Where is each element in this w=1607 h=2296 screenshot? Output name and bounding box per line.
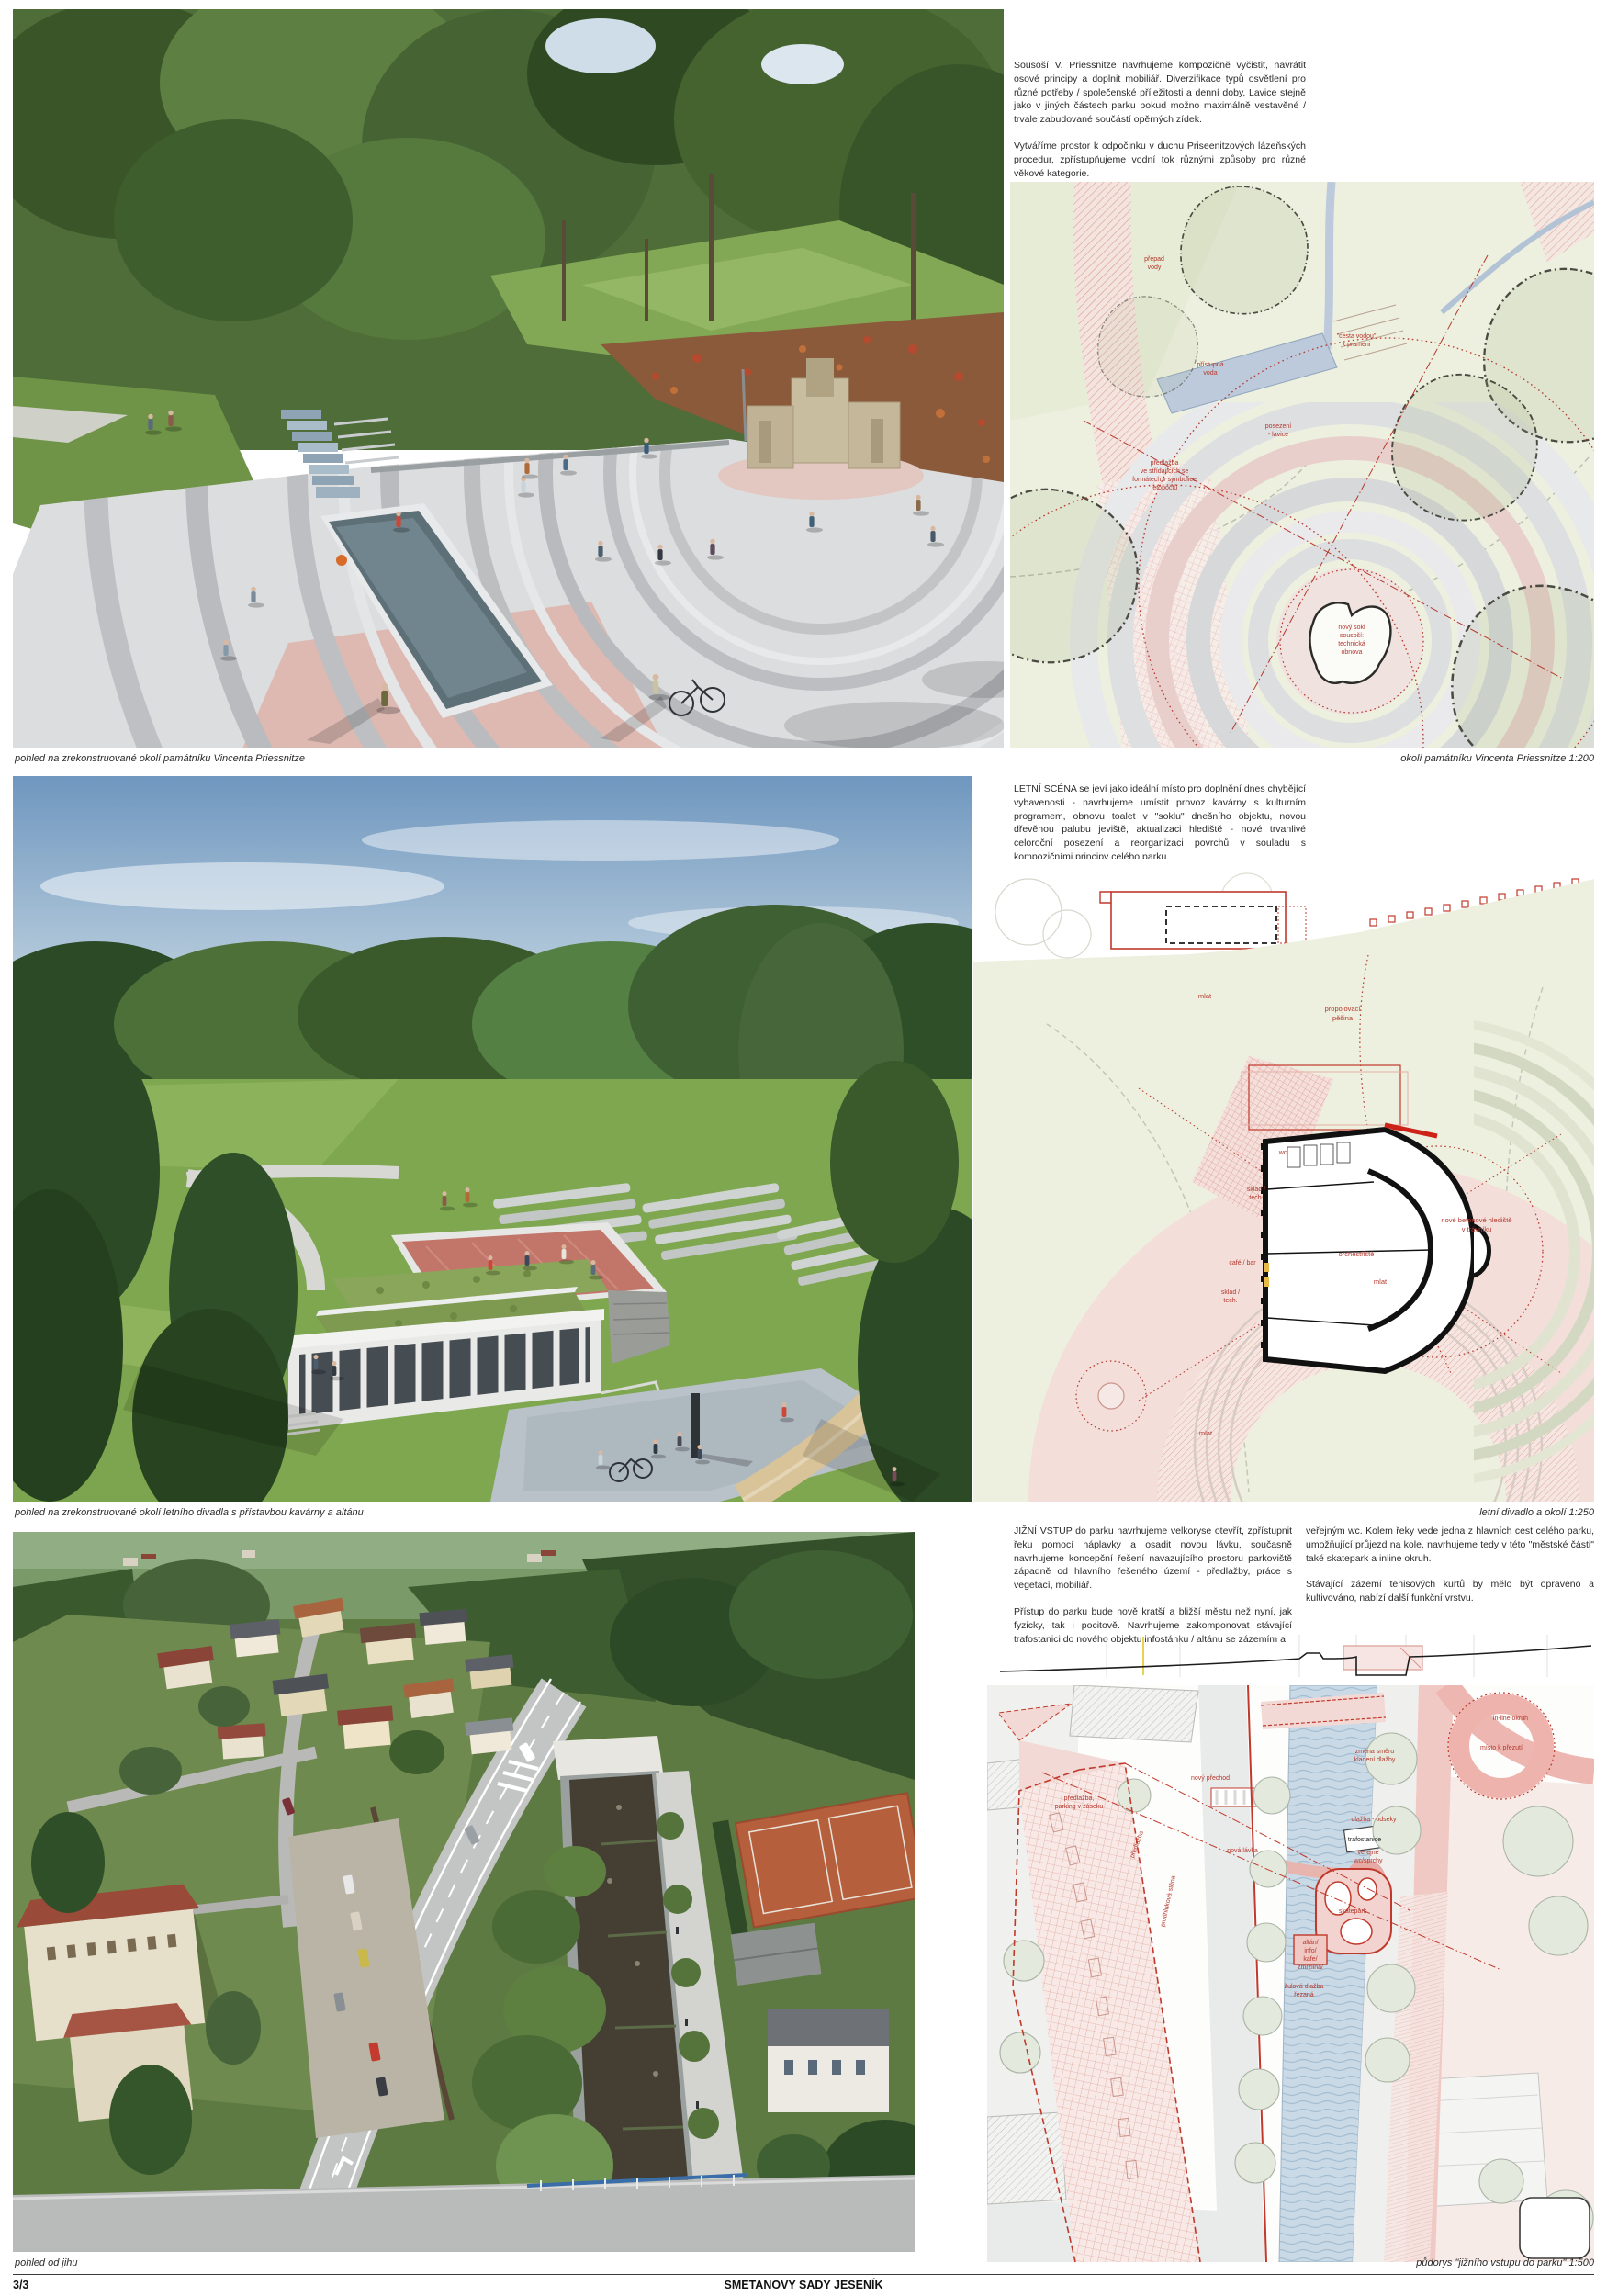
svg-text:technická: technická <box>1338 641 1365 647</box>
plan-summer-theatre-1-250: mlat propojovací pěšina wc sklad / tech.… <box>973 859 1594 1502</box>
svg-text:dlažba - odseky: dlažba - odseky <box>1351 1817 1397 1823</box>
plan-priessnitz-1-200: přepad vody "cesta vodou" k prameni přís… <box>1010 182 1594 748</box>
svg-text:mlat: mlat <box>1198 992 1212 1000</box>
svg-text:formátech v symbolice: formátech v symbolice <box>1132 477 1197 483</box>
svg-text:trafostanice: trafostanice <box>1348 1837 1381 1843</box>
svg-text:nový sokl: nový sokl <box>1338 625 1365 631</box>
photo-south-entrance <box>13 1532 915 2252</box>
svg-text:tech.: tech. <box>1249 1195 1263 1201</box>
paragraph: JIŽNÍ VSTUP do parku navrhujeme velkorys… <box>1014 1525 1292 1593</box>
svg-text:altán/: altán/ <box>1302 1940 1318 1946</box>
svg-text:nová lávka: nová lávka <box>1227 1848 1258 1854</box>
photo-caption: pohled na zrekonstruované okolí letního … <box>15 1507 364 1518</box>
svg-text:sousoší:: sousoší: <box>1340 633 1364 639</box>
paragraph: Vytváříme prostor k odpočinku v duchu Pr… <box>1014 140 1306 180</box>
svg-text:posezení: posezení <box>1265 423 1291 430</box>
svg-text:mlat: mlat <box>1199 1429 1213 1437</box>
svg-text:žulová dlažba: žulová dlažba <box>1285 1984 1324 1990</box>
photo-priessnitz-plaza <box>13 9 1004 748</box>
svg-text:letopočtů: letopočtů <box>1152 484 1178 491</box>
svg-text:veřejné: veřejné <box>1358 1850 1379 1856</box>
paragraph: Stávající zázemí tenisových kurtů by měl… <box>1306 1578 1594 1605</box>
svg-text:přepad: přepad <box>1144 256 1164 263</box>
svg-text:orchestřiště: orchestřiště <box>1339 1250 1375 1258</box>
building <box>1070 1685 1198 1742</box>
svg-text:obnova: obnova <box>1342 649 1363 656</box>
section-profile-south-entrance <box>996 1635 1594 1683</box>
photo-caption: pohled od jihu <box>15 2257 78 2268</box>
svg-text:mlat: mlat <box>1374 1277 1388 1286</box>
presentation-board: Sousoší V. Priessnitze navrhujeme kompoz… <box>0 0 1607 2296</box>
paragraph: LETNÍ SCÉNA se jeví jako ideální místo p… <box>1014 782 1306 864</box>
svg-text:"cesta vodou": "cesta vodou" <box>1337 333 1377 340</box>
svg-text:sklad /: sklad / <box>1247 1187 1265 1193</box>
plan-caption: okolí památníku Vincenta Priessnitze 1:2… <box>1010 753 1594 764</box>
svg-text:propojovací: propojovací <box>1325 1005 1362 1013</box>
svg-text:- lavice: - lavice <box>1268 432 1288 438</box>
footer-rule <box>13 2274 1594 2275</box>
text-block-priessnitz: Sousoší V. Priessnitze navrhujeme kompoz… <box>1014 59 1306 193</box>
svg-text:místo k přezutí: místo k přezutí <box>1480 1745 1523 1751</box>
svg-text:změna směru: změna směru <box>1355 1749 1395 1755</box>
svg-text:vody: vody <box>1148 264 1162 271</box>
text-block-south-entrance-col2: veřejným wc. Kolem řeky vede jedna z hla… <box>1306 1525 1594 1618</box>
svg-text:in-line okruh: in-line okruh <box>1493 1716 1528 1722</box>
svg-text:řezaná: řezaná <box>1294 1992 1314 1998</box>
svg-text:info/: info/ <box>1304 1948 1316 1954</box>
svg-text:nový přechod: nový přechod <box>1191 1775 1230 1782</box>
corner-box <box>1520 2198 1590 2258</box>
plan-caption: půdorys "jižního vstupu do parku" 1:500 <box>987 2257 1594 2268</box>
svg-text:předlažba: předlažba <box>1151 460 1179 467</box>
svg-text:ve střídajících se: ve střídajících se <box>1141 468 1189 475</box>
svg-text:zmrzlina/: zmrzlina/ <box>1298 1964 1323 1971</box>
svg-text:předlažba,: předlažba, <box>1064 1795 1095 1802</box>
svg-text:pěšina: pěšina <box>1332 1014 1354 1022</box>
svg-text:kafe/: kafe/ <box>1303 1956 1317 1963</box>
svg-text:wc/sprchy: wc/sprchy <box>1353 1858 1383 1864</box>
svg-text:kladení dlažby: kladení dlažby <box>1354 1757 1396 1763</box>
paragraph: veřejným wc. Kolem řeky vede jedna z hla… <box>1306 1525 1594 1565</box>
photo-caption: pohled na zrekonstruované okolí památník… <box>15 753 305 764</box>
footer-project-title: SMETANOVY SADY JESENÍK <box>0 2279 1607 2291</box>
svg-text:přístupná: přístupná <box>1197 362 1223 368</box>
svg-text:parking v záseku: parking v záseku <box>1055 1804 1104 1810</box>
svg-text:k prameni: k prameni <box>1343 342 1371 348</box>
paragraph: Sousoší V. Priessnitze navrhujeme kompoz… <box>1014 59 1306 127</box>
photo-summer-stage <box>13 776 972 1502</box>
svg-text:v trávníku: v trávníku <box>1462 1225 1492 1233</box>
svg-text:nové betonové hlediště: nové betonové hlediště <box>1441 1216 1511 1224</box>
svg-text:tech.: tech. <box>1223 1298 1237 1304</box>
svg-text:café / bar: café / bar <box>1229 1260 1256 1266</box>
svg-text:skatepark: skatepark <box>1339 1908 1367 1915</box>
plan-caption: letní divadlo a okolí 1:250 <box>1010 1507 1594 1518</box>
svg-text:sklad /: sklad / <box>1221 1289 1240 1296</box>
plan-south-entrance-1-500: předlažba, parking v záseku předlažba pr… <box>987 1685 1594 2262</box>
svg-text:voda: voda <box>1203 370 1217 377</box>
svg-text:wc: wc <box>1278 1150 1287 1156</box>
